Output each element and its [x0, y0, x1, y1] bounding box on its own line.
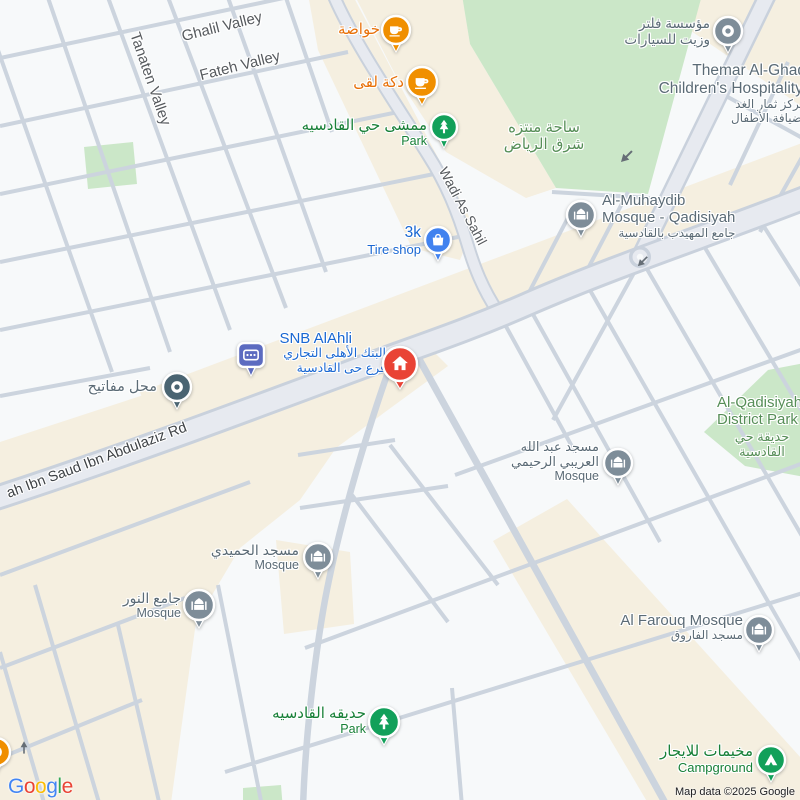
mosque-icon[interactable]	[598, 443, 638, 488]
poi-edge-icon[interactable]	[0, 732, 16, 777]
cafe-icon[interactable]	[401, 61, 443, 108]
bank-icon[interactable]	[232, 336, 270, 379]
google-logo[interactable]: Google	[8, 775, 73, 799]
park-icon[interactable]	[425, 108, 463, 151]
mosque-icon[interactable]	[739, 610, 779, 655]
google-logo-letter: o	[24, 775, 35, 798]
shopping-bag-icon[interactable]	[419, 221, 457, 264]
google-logo-letter: G	[8, 775, 24, 798]
mosque-icon[interactable]	[561, 195, 601, 240]
mosque-icon[interactable]	[178, 584, 220, 631]
mosque-icon[interactable]	[298, 537, 338, 582]
google-logo-letter: e	[62, 775, 73, 798]
map-icons-layer	[0, 0, 800, 800]
google-logo-letter: o	[35, 775, 46, 798]
google-logo-letter: g	[46, 775, 57, 798]
map-attribution: Map data ©2025 Google	[675, 786, 795, 798]
property-marker-icon[interactable]	[377, 341, 423, 392]
car-repair-icon[interactable]	[708, 11, 748, 56]
campground-icon[interactable]	[751, 740, 791, 785]
map-canvas[interactable]: Ghalil ValleyFateh ValleyTanaten ValleyW…	[0, 0, 800, 800]
park-icon[interactable]	[363, 701, 405, 748]
key-shop-icon[interactable]	[157, 367, 197, 412]
cafe-icon[interactable]	[376, 10, 416, 55]
